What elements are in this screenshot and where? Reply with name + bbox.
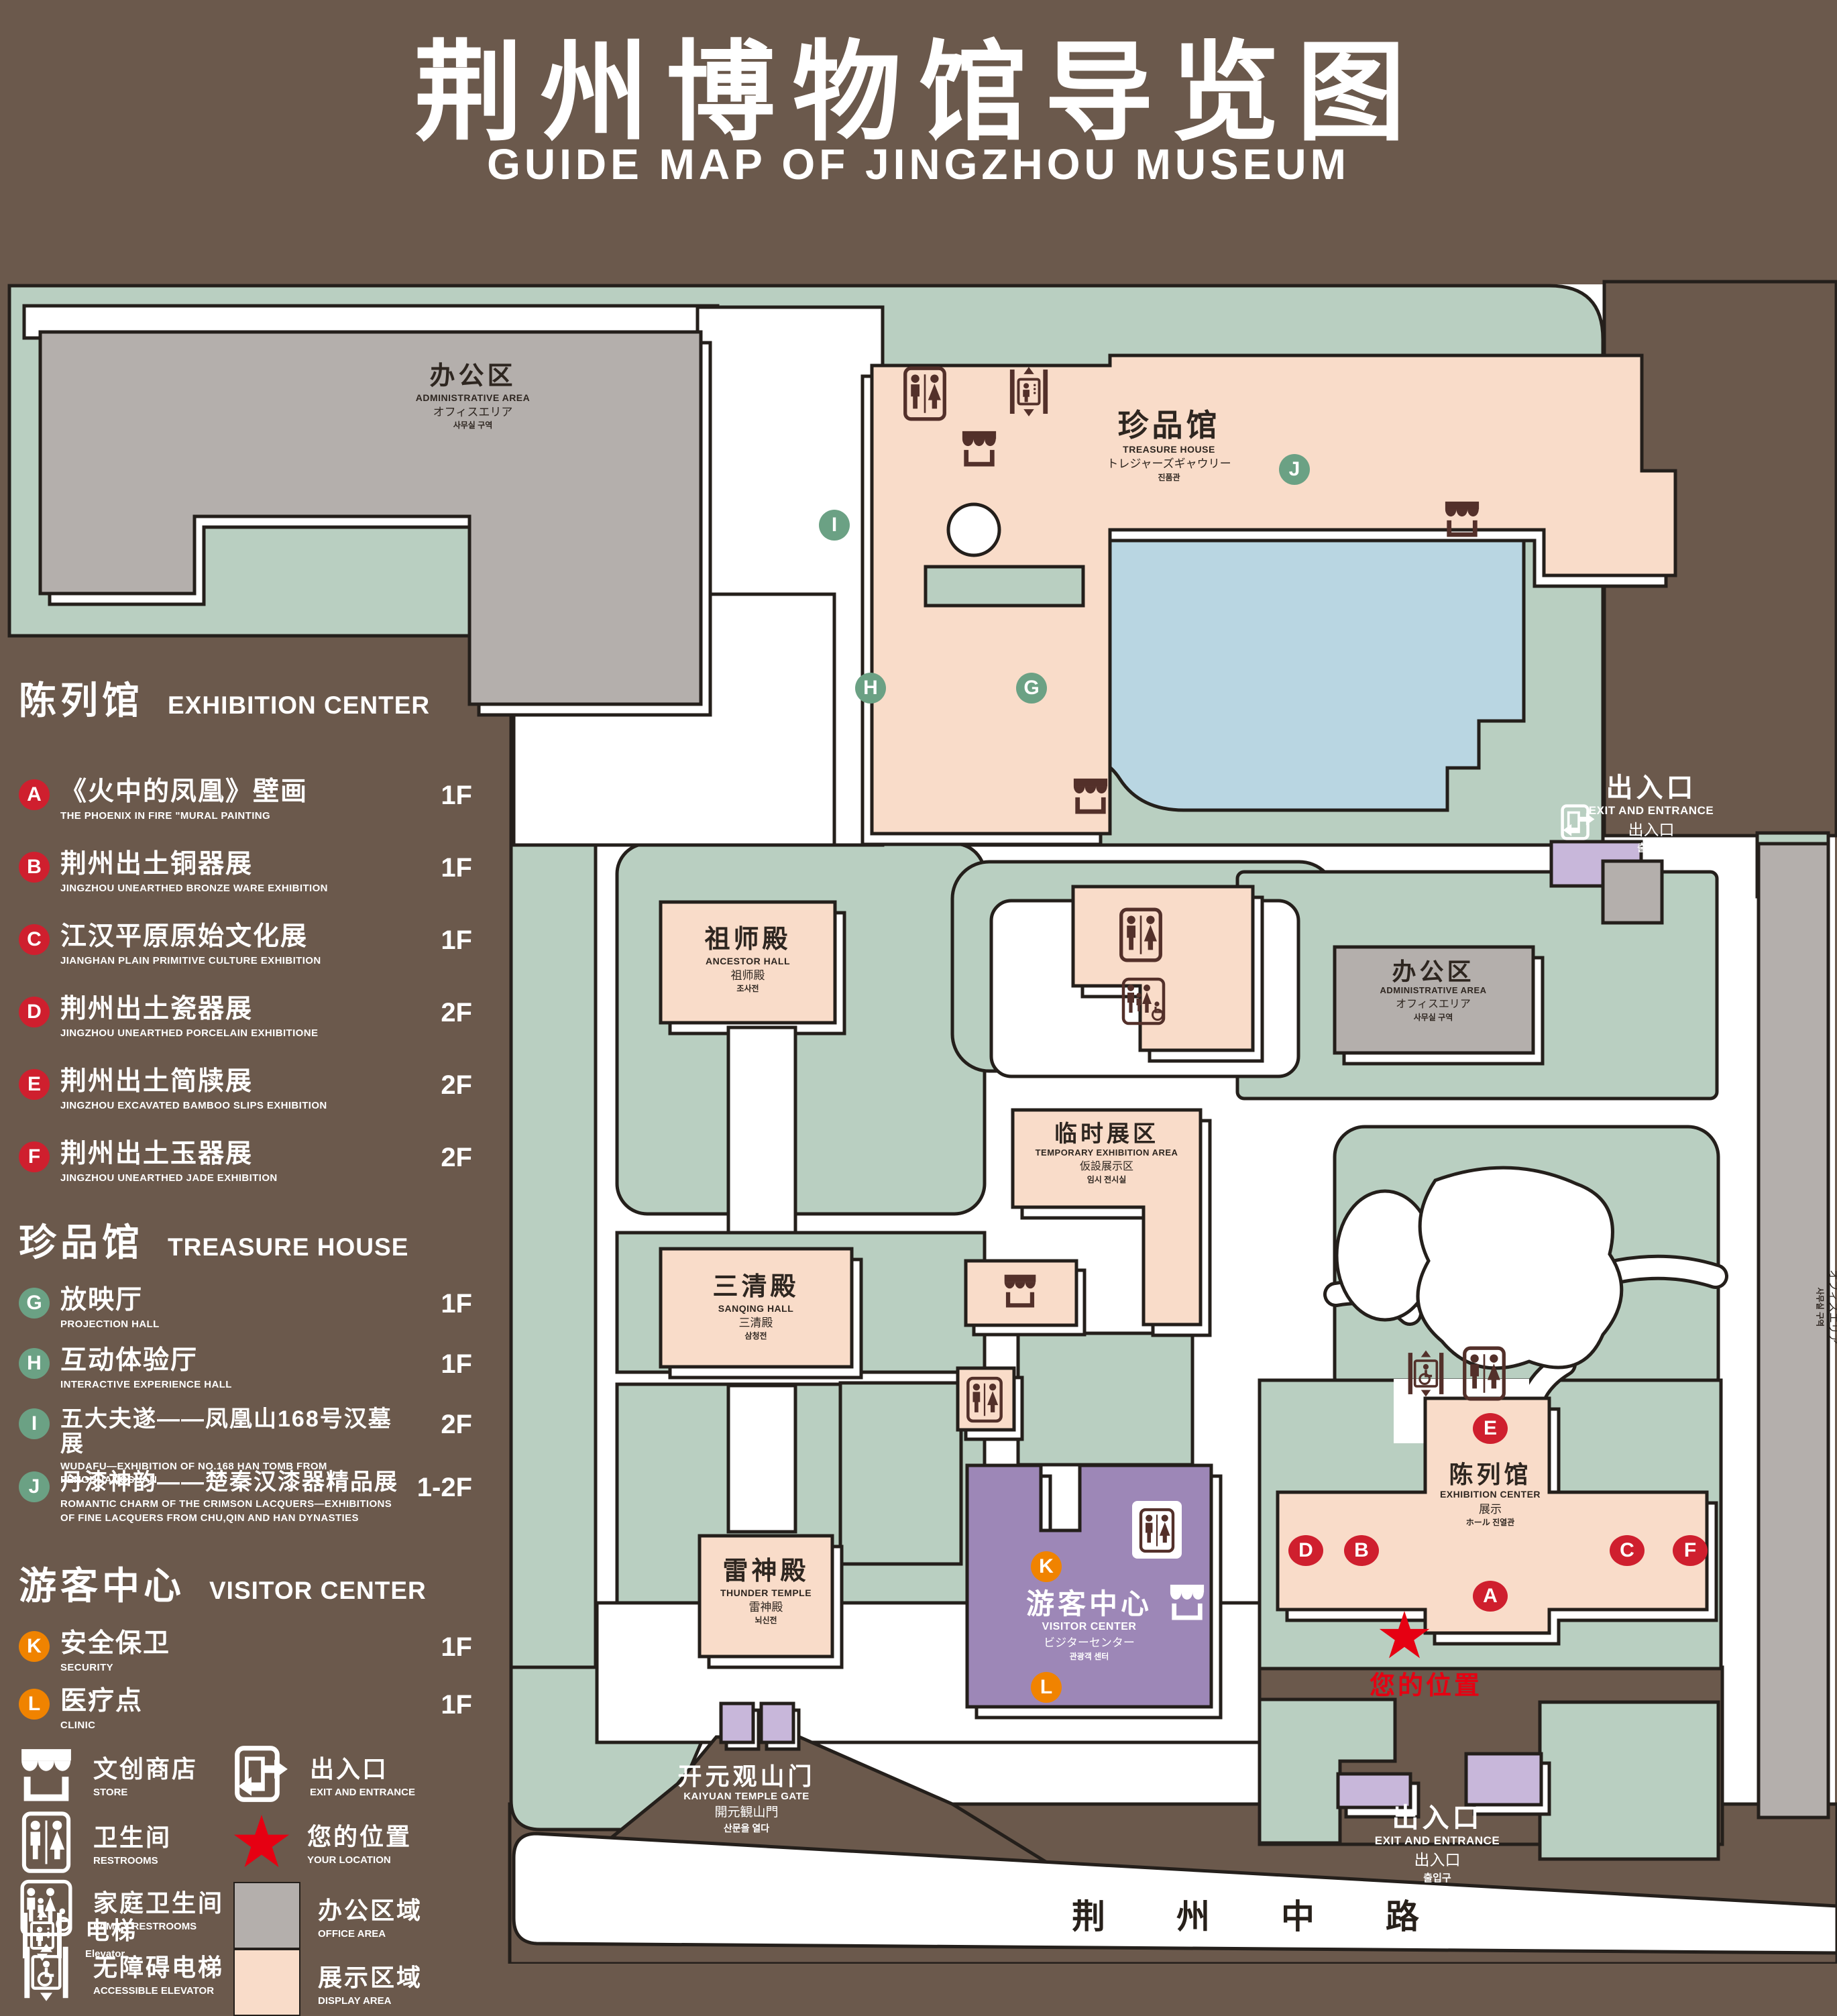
legend-item-g: G 放映厅PROJECTION HALL 1F (19, 1286, 472, 1331)
admin-northwest-label: 办公区 ADMINISTRATIVE AREA オフィスエリア 사무실 구역 (416, 362, 531, 431)
legend-display-area: 展示区域DISPLAY AREA (233, 1949, 423, 2016)
marker-b: B (1344, 1535, 1379, 1566)
store-icon (1001, 1273, 1040, 1308)
marker-e: E (1473, 1413, 1508, 1444)
display-area-swatch (233, 1949, 300, 2016)
store-icon (17, 1742, 76, 1805)
marker-j: J (1279, 454, 1310, 485)
legend-item-k: K 安全保卫SECURITY 1F (19, 1630, 472, 1675)
store-icon (959, 429, 999, 467)
restrooms-icon (17, 1811, 76, 1874)
family-restrooms-icon (1121, 976, 1166, 1027)
restrooms-icon (966, 1376, 1003, 1423)
legend-store: 文创商店STORE (17, 1742, 198, 1805)
elevator-icon (1007, 363, 1050, 420)
marker-f: F (1673, 1535, 1708, 1566)
legend-office-area: 办公区域OFFICE AREA (233, 1882, 423, 1949)
legend-restrooms: 卫生间RESTROOMS (17, 1811, 172, 1874)
restrooms-icon (1138, 1508, 1176, 1553)
location-star (233, 1815, 290, 1868)
legend-elevator: 电梯Elevator (17, 1909, 137, 1962)
exit-south-label: 出入口 EXIT AND ENTRANCE 出入口 출입구 (1375, 1803, 1500, 1885)
exit-icon (1560, 803, 1598, 841)
admin-mid-label: 办公区 ADMINISTRATIVE AREA オフィスエリア 사무실 구역 (1380, 958, 1487, 1023)
legend-item-j: J 丹漆神韵——楚秦汉漆器精品展ROMANTIC CHARM OF THE CR… (19, 1470, 472, 1525)
legend-your-location: 您的位置YOUR LOCATION (233, 1815, 412, 1868)
marker-k: K (1031, 1551, 1062, 1582)
exit-icon (233, 1742, 292, 1805)
elevator-icon (17, 1909, 68, 1962)
your-location-star (1379, 1611, 1430, 1659)
thunder-temple-label: 雷神殿 THUNDER TEMPLE 雷神殿 뇌신전 (720, 1557, 812, 1626)
admin-right-strip-label: 办公区 ADMINISTRATIVE AREA オフィスエリア 사무실 구역 (1814, 1253, 1837, 1360)
section-visitor-center: 游客中心VISITOR CENTER (19, 1556, 427, 1610)
marker-i: I (819, 510, 850, 541)
store-icon (1442, 500, 1482, 537)
treasure-house-label: 珍品馆 TREASURE HOUSE トレジャーズギャウリー 진품관 (1107, 408, 1231, 483)
legend-item-h: H 互动体验厅INTERACTIVE EXPERIENCE HALL 1F (19, 1347, 472, 1392)
sanqing-hall-label: 三清殿 SANQING HALL 三清殿 삼청전 (712, 1273, 799, 1342)
marker-a: A (1473, 1581, 1508, 1612)
legend-item-c: C 江汉平原原始文化展JIANGHAN PLAIN PRIMITIVE CULT… (19, 923, 472, 968)
visitor-center-label: 游客中心 VISITOR CENTER ビジターセンター 관광객 센터 (1026, 1588, 1152, 1662)
marker-h: H (855, 673, 886, 704)
legend-item-f: F 荆州出土玉器展JINGZHOU UNEARTHED JADE EXHIBIT… (19, 1140, 472, 1185)
temporary-exhibition-label: 临时展区 TEMPORARY EXHIBITION AREA 仮設展示区 임시 … (1036, 1121, 1178, 1186)
exit-northeast-label: 出入口 EXIT AND ENTRANCE 出入口 출입구 (1589, 773, 1714, 854)
marker-l: L (1031, 1672, 1062, 1703)
kaiyuan-gate-label: 开元观山门 KAIYUAN TEMPLE GATE 開元観山門 산문을 열다 (677, 1762, 815, 1835)
legend-item-l: L 医疗点CLINIC 1F (19, 1687, 472, 1732)
legend-item-e: E 荆州出土简牍展JINGZHOU EXCAVATED BAMBOO SLIPS… (19, 1068, 472, 1113)
marker-c: C (1610, 1535, 1645, 1566)
section-exhibition-center: 陈列馆EXHIBITION CENTER (19, 671, 430, 725)
store-icon (1070, 777, 1111, 814)
legend-item-b: B 荆州出土铜器展JINGZHOU UNEARTHED BRONZE WARE … (19, 850, 472, 895)
restrooms-icon (1119, 907, 1163, 963)
restrooms-icon (903, 366, 947, 422)
your-location-label: 您的位置 (1370, 1665, 1482, 1701)
legend-item-d: D 荆州出土瓷器展JINGZHOU UNEARTHED PORCELAIN EX… (19, 995, 472, 1040)
road-label: 荆 州 中 路 (1072, 1890, 1450, 1938)
guide-map-poster: { "title": {"zh": "荆州博物馆导览图", "en": "GUI… (0, 0, 1837, 1964)
restrooms-icon (1462, 1345, 1506, 1402)
exhibition-center-label: 陈列馆 EXHIBITION CENTER 展示 ホール 진열관 (1440, 1461, 1541, 1528)
section-treasure-house: 珍品馆TREASURE HOUSE (19, 1213, 408, 1267)
building-admin-northwest (40, 332, 710, 715)
marker-g: G (1016, 673, 1047, 704)
legend-exit: 出入口EXIT AND ENTRANCE (233, 1742, 415, 1805)
store-icon (1167, 1583, 1207, 1620)
marker-d: D (1288, 1535, 1323, 1566)
office-area-swatch (233, 1882, 300, 1949)
ancestor-hall-label: 祖师殿 ANCESTOR HALL 祖师殿 조사전 (704, 926, 791, 995)
legend-item-a: A 《火中的凤凰》壁画THE PHOENIX IN FIRE "MURAL PA… (19, 778, 472, 823)
accessible-elevator-icon (1406, 1345, 1446, 1402)
